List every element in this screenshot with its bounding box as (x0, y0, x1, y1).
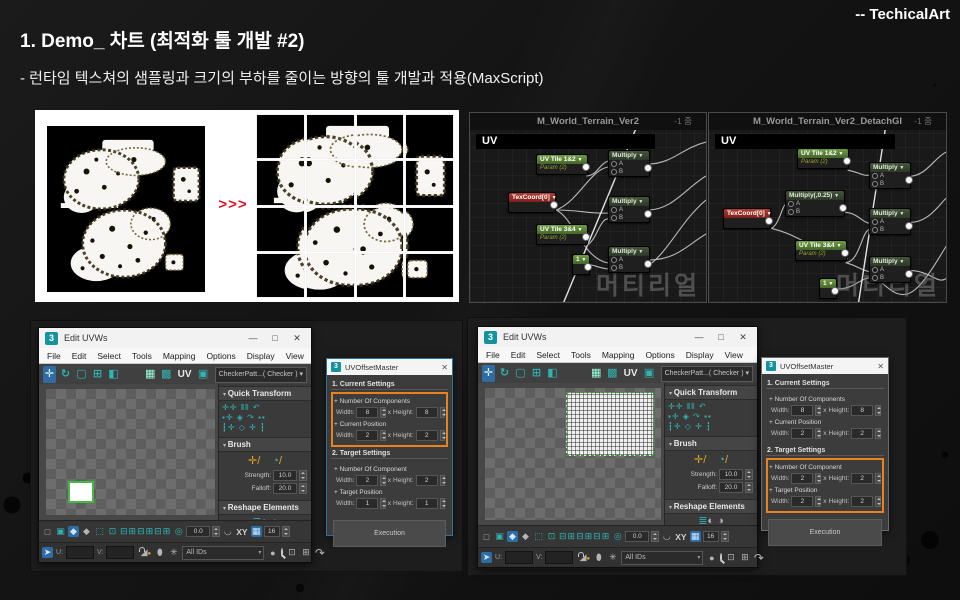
strength-value[interactable]: 10.0 (719, 469, 743, 480)
menu-item-options[interactable]: Options (206, 351, 235, 361)
width-value[interactable]: 2 (356, 430, 378, 441)
height-value[interactable]: 8 (416, 407, 438, 418)
pan-hand-icon[interactable]: ● (706, 553, 717, 563)
width-spinner[interactable] (380, 407, 385, 418)
slide-background: -- TechicalArt 1. Demo_ 차트 (최적화 툴 개발 #2)… (0, 0, 960, 600)
falloff-spinner[interactable] (745, 482, 753, 493)
input-pin[interactable] (872, 173, 878, 179)
width-value[interactable]: 1 (356, 498, 378, 509)
material-node-multiply[interactable]: Multiply ▼AB (608, 246, 650, 273)
input-row: B (870, 274, 910, 282)
minimize-button[interactable]: — (691, 332, 707, 342)
rollout-quick-transform[interactable]: Quick Transform (219, 386, 311, 401)
output-pin[interactable] (905, 176, 913, 184)
height-spinner[interactable] (440, 475, 445, 486)
curve-icon: ◡ (661, 531, 672, 542)
menu-bar: FileEditSelectToolsMappingOptionsDisplay… (39, 348, 311, 364)
zoom-icon[interactable] (281, 548, 283, 557)
zoom-region-icon[interactable]: ⊡ (286, 547, 297, 558)
menu-item-select[interactable]: Select (536, 350, 560, 360)
menu-item-display[interactable]: Display (686, 350, 714, 360)
texture-tile (307, 161, 354, 204)
zoom-level-label: -1 줌 (914, 113, 932, 130)
height-spinner[interactable] (875, 473, 881, 484)
material-node-multiply[interactable]: Multiply ▼AB (608, 196, 650, 223)
zoom-extents-icon[interactable]: ⊞ (739, 552, 750, 563)
uv-section-label: UV (715, 134, 895, 149)
texture-tile (406, 254, 453, 297)
material-node-uv-tile-3-4[interactable]: UV Tile 3&4 ▼Param (2) (795, 240, 847, 261)
chevron-down-icon: ▼ (581, 257, 586, 263)
output-pin[interactable] (765, 217, 773, 225)
height-spinner[interactable] (440, 407, 445, 418)
zoom-level-label: -1 줌 (674, 113, 692, 130)
input-pin[interactable] (611, 161, 617, 167)
scale-tool-icon[interactable]: ▢ (75, 366, 88, 383)
group-fields: Width: 2 x Height: 2 (771, 496, 881, 507)
reshape-icons[interactable]: ≣◐ ◑ (665, 514, 757, 525)
paint-brush-icon[interactable]: ✛/ (694, 455, 706, 465)
texture-tile (307, 254, 354, 297)
input-pin[interactable] (872, 275, 878, 281)
input-pin[interactable] (611, 257, 617, 263)
eye-icon[interactable]: ⬮ (154, 547, 165, 558)
transform-arrow: >>> (213, 196, 253, 213)
input-row: B (870, 226, 910, 234)
edge-mode-icon[interactable]: ▣ (494, 531, 505, 542)
node-param-value: Param (2) (537, 164, 587, 172)
output-pin[interactable] (841, 249, 849, 257)
width-spinner[interactable] (815, 496, 821, 507)
width-value[interactable]: 2 (791, 428, 813, 439)
options-icon[interactable]: ▣ (643, 365, 656, 382)
menu-item-select[interactable]: Select (97, 351, 121, 361)
strength-label: Strength: (245, 471, 271, 481)
absolute-mode-icon[interactable]: ➤ (42, 547, 53, 558)
width-value[interactable]: 2 (356, 475, 378, 486)
rotate-tool-icon[interactable]: ↻ (59, 366, 72, 383)
close-button[interactable]: ✕ (289, 333, 305, 344)
chevron-down-icon: ▼ (638, 199, 643, 205)
texture-compare-panel: >>> (35, 110, 459, 302)
group-label: + Target Position (769, 487, 881, 494)
output-pin[interactable] (582, 233, 590, 241)
texture-tile (406, 208, 453, 251)
material-node-texcoord-0-[interactable]: TexCoord[0] ▼ (508, 192, 556, 213)
pan-hand-icon[interactable]: ● (267, 548, 278, 558)
maximize-button[interactable]: □ (267, 333, 283, 343)
angle-spinner[interactable] (212, 526, 220, 537)
output-pin[interactable] (905, 222, 913, 230)
node-title: Multiply ▼ (609, 197, 649, 206)
uv-checker-grid (485, 388, 661, 520)
material-node-multiply-0-25-[interactable]: Multiply(,0.25) ▼AB (785, 190, 845, 217)
texture-tile (357, 115, 404, 158)
falloff-label: Falloff: (252, 484, 271, 494)
rollout-brush[interactable]: Brush (665, 436, 757, 451)
texture-tile (307, 115, 354, 158)
group-fields: Width: 2 x Height: 2 (336, 475, 445, 486)
height-spinner[interactable] (440, 498, 445, 509)
quick-transform-icons[interactable]: ✛✛ ⦀⦀ ↶▪✛ ◈ ↷ ▪▪┇✛ ◇ ✛ ┇ (665, 400, 757, 434)
edge-mode-icon[interactable]: ▣ (55, 526, 66, 537)
output-pin[interactable] (550, 201, 558, 209)
freeform-tool-icon[interactable]: ⊞ (91, 366, 104, 383)
chevron-down-icon: ▼ (638, 249, 643, 255)
height-label: Height: (829, 475, 850, 482)
width-value[interactable]: 2 (791, 496, 813, 507)
move-tool-icon[interactable]: ✛ (43, 366, 56, 383)
minimize-button[interactable]: — (245, 333, 261, 343)
material-ids-dropdown[interactable]: All IDs (621, 551, 703, 565)
show-map-icon[interactable]: ▦ (590, 365, 603, 382)
input-pin[interactable] (872, 219, 878, 225)
u-input[interactable] (505, 551, 533, 564)
height-value[interactable]: 2 (416, 430, 438, 441)
close-icon[interactable]: ✕ (877, 362, 884, 371)
input-pin[interactable] (872, 227, 878, 233)
rollout-quick-transform[interactable]: Quick Transform (665, 385, 757, 400)
selection-toolbar: □ ▣ ◆ ◆ ⬚ ⊡ ⊟⊞⊟⊞⊟⊞ ◎ 0.0 ◡ XY ▦ 16 (478, 525, 757, 547)
width-spinner[interactable] (380, 430, 385, 441)
width-spinner[interactable] (815, 473, 821, 484)
texture-tile (357, 161, 404, 204)
absolute-mode-icon[interactable]: ➤ (481, 552, 492, 563)
node-title: Multiply ▼ (870, 209, 910, 218)
arc-rotate-icon[interactable]: ↷ (753, 551, 764, 565)
options-icon[interactable]: ▣ (197, 366, 210, 383)
snowflake-icon[interactable]: ✳ (607, 552, 618, 563)
grid-size-value[interactable]: 16 (703, 531, 719, 542)
grid-size-value[interactable]: 16 (264, 526, 280, 537)
rotate-tool-icon[interactable]: ↻ (498, 365, 511, 382)
input-pin[interactable] (611, 265, 617, 271)
group-label: + Current Position (769, 419, 881, 426)
face-mode-icon[interactable]: ◆ (68, 526, 79, 537)
group-fields: Width: 8 x Height: 8 (336, 407, 445, 418)
group-fields: Width: 2 x Height: 2 (771, 428, 881, 439)
height-label: Height: (393, 432, 414, 439)
main-toolbar: ✛ ↻ ▢ ⊞ ◧ ▦ ▩ UV ▣ CheckerPatt...( Check… (39, 364, 311, 386)
window-body: Quick Transform ✛✛ ⦀⦀ ↶▪✛ ◈ ↷ ▪▪┇✛ ◇ ✛ ┇… (39, 384, 311, 520)
output-pin[interactable] (839, 204, 847, 212)
node-title: TexCoord[0] ▼ (724, 209, 770, 218)
grid-size-spinner[interactable] (282, 526, 290, 537)
section-heading: 2. Target Settings (766, 444, 884, 456)
show-map-icon[interactable]: ▦ (144, 366, 157, 383)
output-pin[interactable] (644, 210, 652, 218)
input-pin[interactable] (611, 215, 617, 221)
material-node-uv-tile-1-2[interactable]: UV Tile 1&2 ▼Param (2) (797, 148, 849, 169)
x-label: x (823, 407, 826, 414)
output-pin[interactable] (582, 163, 590, 171)
v-input[interactable] (106, 546, 134, 559)
menu-item-tools[interactable]: Tools (571, 350, 591, 360)
material-node-multiply[interactable]: Multiply ▼AB (869, 162, 911, 189)
input-pin[interactable] (788, 201, 794, 207)
u-label: U: (495, 554, 502, 561)
dialog-titlebar[interactable]: 3 UVOffsetMaster ✕ (327, 359, 452, 375)
node-param-value: Param (2) (796, 250, 846, 258)
relax-brush-icon[interactable]: ◔/ (718, 455, 728, 465)
height-label: Height: (393, 409, 414, 416)
input-row: A (609, 256, 649, 264)
grid-snap-icon[interactable]: ▦ (690, 531, 701, 542)
rollout-reshape-elements[interactable]: Reshape Elements (665, 499, 757, 514)
angle-snap-icon[interactable]: ◎ (612, 531, 623, 542)
menu-item-display[interactable]: Display (247, 351, 275, 361)
uv-canvas[interactable] (39, 384, 218, 520)
node-title: Multiply(,0.25) ▼ (786, 191, 844, 200)
output-pin[interactable] (584, 263, 592, 271)
execution-button[interactable]: Execution (768, 519, 882, 546)
height-spinner[interactable] (875, 496, 881, 507)
material-node-uv-tile-3-4[interactable]: UV Tile 3&4 ▼Param (2) (536, 224, 588, 245)
status-toolbar: ➤ U: V: ◢● ⬮ ✳ All IDs ● ⊡ ⊞ ↷ (39, 542, 311, 562)
scale-tool-icon[interactable]: ▢ (514, 365, 527, 382)
width-label: Width: (336, 432, 354, 439)
chevron-down-icon: ▼ (828, 281, 833, 287)
vertex-mode-icon[interactable]: □ (481, 532, 492, 542)
vertex-mode-icon[interactable]: □ (42, 527, 53, 537)
grid-snap-icon[interactable]: ▦ (251, 526, 262, 537)
material-node-multiply[interactable]: Multiply ▼AB (608, 150, 650, 177)
element-mode-icon[interactable]: ◆ (520, 531, 531, 542)
input-pin[interactable] (611, 169, 617, 175)
mirror-tool-icon[interactable]: ◧ (107, 366, 120, 383)
menu-item-options[interactable]: Options (645, 350, 674, 360)
zoom-icon[interactable] (720, 553, 722, 562)
height-spinner[interactable] (875, 428, 881, 439)
node-title: UV Tile 3&4 ▼ (796, 241, 846, 250)
material-node-uv-tile-1-2[interactable]: UV Tile 1&2 ▼Param (2) (536, 154, 588, 175)
strength-spinner[interactable] (299, 470, 307, 481)
node-graph-canvas[interactable]: UV 머티리얼 UV Tile 1&2 ▼Param (2)TexCoord[0… (470, 130, 706, 302)
height-value[interactable]: 2 (851, 496, 873, 507)
rollout-brush[interactable]: Brush (219, 437, 311, 452)
input-row: B (609, 168, 649, 176)
width-spinner[interactable] (815, 428, 821, 439)
eye-icon[interactable]: ⬮ (593, 552, 604, 563)
height-spinner[interactable] (440, 430, 445, 441)
output-pin[interactable] (644, 164, 652, 172)
close-icon[interactable]: ✕ (441, 363, 448, 372)
output-pin[interactable] (831, 287, 839, 295)
relax-brush-icon[interactable]: ◔/ (272, 456, 282, 466)
xy-axis-label[interactable]: XY (675, 532, 686, 542)
right-sidebar: Quick Transform ✛✛ ⦀⦀ ↶▪✛ ◈ ↷ ▪▪┇✛ ◇ ✛ ┇… (218, 384, 311, 520)
main-toolbar: ✛ ↻ ▢ ⊞ ◧ ▦ ▩ UV ▣ CheckerPatt...( Check… (478, 363, 757, 385)
u-input[interactable] (66, 546, 94, 559)
group-fields: Width: 1 x Height: 1 (336, 498, 445, 509)
element-mode-icon[interactable]: ◆ (81, 526, 92, 537)
height-spinner[interactable] (875, 405, 881, 416)
window-titlebar[interactable]: 3 Edit UVWs — □ ✕ (39, 328, 311, 348)
node-title: UV Tile 1&2 ▼ (537, 155, 587, 164)
height-label: Height: (393, 477, 414, 484)
freeform-tool-icon[interactable]: ⊞ (530, 365, 543, 382)
node-title: TexCoord[0] ▼ (509, 193, 555, 202)
menu-item-file[interactable]: File (47, 351, 61, 361)
mirror-tool-icon[interactable]: ◧ (546, 365, 559, 382)
width-value[interactable]: 8 (356, 407, 378, 418)
max-logo-icon: 3 (766, 361, 776, 371)
height-value[interactable]: 1 (416, 498, 438, 509)
rollout-reshape-elements[interactable]: Reshape Elements (219, 500, 311, 515)
output-pin[interactable] (644, 260, 652, 268)
material-node-texcoord-0-[interactable]: TexCoord[0] ▼ (723, 208, 771, 229)
x-label: x (388, 477, 391, 484)
align-icons[interactable]: ⊟⊞⊟⊞⊟⊞ (120, 526, 171, 537)
input-pin[interactable] (872, 181, 878, 187)
window-titlebar[interactable]: 3 Edit UVWs — □ ✕ (478, 327, 757, 347)
window-title: Edit UVWs (64, 333, 239, 343)
menu-item-edit[interactable]: Edit (72, 351, 87, 361)
chevron-down-icon: ▼ (836, 243, 841, 249)
align-icons[interactable]: ⊟⊞⊟⊞⊟⊞ (559, 531, 610, 542)
falloff-value[interactable]: 20.0 (719, 482, 743, 493)
input-pin[interactable] (788, 209, 794, 215)
falloff-label: Falloff: (698, 483, 717, 493)
quick-transform-icons[interactable]: ✛✛ ⦀⦀ ↶▪✛ ◈ ↷ ▪▪┇✛ ◇ ✛ ┇ (219, 401, 311, 435)
menu-item-edit[interactable]: Edit (511, 350, 526, 360)
u-label: U: (56, 549, 63, 556)
close-button[interactable]: ✕ (735, 332, 751, 343)
height-value[interactable]: 2 (851, 473, 873, 484)
material-node-1[interactable]: 1 ▼ (572, 254, 590, 275)
strength-label: Strength: (691, 470, 717, 480)
input-pin[interactable] (872, 267, 878, 273)
move-tool-icon[interactable]: ✛ (482, 365, 495, 382)
v-input[interactable] (545, 551, 573, 564)
section-groups-highlighted: + Number Of Components Width: 8 x Height… (331, 392, 448, 447)
snowflake-icon[interactable]: ✳ (168, 547, 179, 558)
checker-pattern-dropdown[interactable]: CheckerPatt...( Checker ) ▾ (661, 366, 753, 382)
width-value[interactable]: 2 (791, 473, 813, 484)
texture-tile (257, 161, 304, 204)
height-value[interactable]: 2 (416, 475, 438, 486)
x-label: x (823, 430, 826, 437)
angle-value[interactable]: 0.0 (186, 526, 210, 537)
height-value[interactable]: 2 (851, 428, 873, 439)
material-titlebar: M_World_Terrain_Ver2 -1 줌 (470, 113, 706, 131)
x-label: x (823, 475, 826, 482)
falloff-value[interactable]: 20.0 (273, 483, 297, 494)
dialog-titlebar[interactable]: 3 UVOffsetMaster ✕ (762, 358, 888, 374)
menu-item-mapping[interactable]: Mapping (602, 350, 635, 360)
checker-toggle-icon[interactable]: ▩ (606, 365, 619, 382)
arc-rotate-icon[interactable]: ↷ (314, 546, 325, 560)
select-region-icon[interactable]: ⬚ (94, 526, 105, 537)
face-mode-icon[interactable]: ◆ (507, 531, 518, 542)
section-groups: + Number Of Components Width: 8 x Height… (766, 391, 884, 444)
max-logo-icon: 3 (45, 332, 58, 345)
width-spinner[interactable] (380, 498, 385, 509)
select-region-icon[interactable]: ⬚ (533, 531, 544, 542)
texture-tile (307, 208, 354, 251)
angle-value[interactable]: 0.0 (625, 531, 649, 542)
width-label: Width: (771, 430, 789, 437)
paint-select-icon[interactable]: ⊡ (107, 526, 118, 537)
checker-pattern-dropdown[interactable]: CheckerPatt...( Checker ) ▾ (215, 367, 307, 383)
menu-item-view[interactable]: View (286, 351, 304, 361)
menu-item-file[interactable]: File (486, 350, 500, 360)
angle-spinner[interactable] (651, 531, 659, 542)
xy-axis-label[interactable]: XY (236, 527, 247, 537)
grid-size-spinner[interactable] (721, 531, 729, 542)
node-graph-canvas[interactable]: UV 머티리얼 UV Tile 1&2 ▼Param (2)Multiply(,… (709, 130, 946, 302)
chevron-down-icon: ▼ (577, 227, 582, 233)
zoom-extents-icon[interactable]: ⊞ (300, 547, 311, 558)
uv-selection-mesh[interactable] (566, 392, 654, 456)
page-subtitle: - 런타임 텍스쳐의 샘플링과 크기의 부하를 줄이는 방향의 툴 개발과 적용… (20, 67, 544, 88)
input-pin[interactable] (611, 207, 617, 213)
texture-tile (357, 208, 404, 251)
material-node-multiply[interactable]: Multiply ▼AB (869, 208, 911, 235)
paint-brush-icon[interactable]: ✛/ (248, 456, 260, 466)
input-row: A (870, 218, 910, 226)
x-label: x (388, 409, 391, 416)
material-editor-panel: M_World_Terrain_Ver2 -1 줌 U (469, 112, 707, 303)
menu-bar: FileEditSelectToolsMappingOptionsDisplay… (478, 347, 757, 363)
input-row: A (609, 160, 649, 168)
height-value[interactable]: 8 (851, 405, 873, 416)
material-ids-dropdown[interactable]: All IDs (182, 546, 264, 560)
checker-toggle-icon[interactable]: ▩ (160, 366, 173, 383)
angle-snap-icon[interactable]: ◎ (173, 526, 184, 537)
window-title: Edit UVWs (503, 332, 685, 342)
maximize-button[interactable]: □ (713, 332, 729, 342)
uv-space-label: UV (178, 369, 192, 380)
uv-canvas[interactable] (478, 383, 664, 525)
height-label: Height: (393, 500, 414, 507)
node-title: UV Tile 1&2 ▼ (798, 149, 848, 158)
material-title: M_World_Terrain_Ver2_DetachGI (709, 113, 946, 130)
menu-item-view[interactable]: View (725, 350, 743, 360)
material-node-1[interactable]: 1 ▼ (819, 278, 837, 299)
execution-button[interactable]: Execution (333, 520, 446, 547)
edit-uvws-window: 3 Edit UVWs — □ ✕ FileEditSelectToolsMap… (38, 327, 312, 563)
group-fields: Width: 8 x Height: 8 (771, 405, 881, 416)
paint-select-icon[interactable]: ⊡ (546, 531, 557, 542)
menu-item-mapping[interactable]: Mapping (163, 351, 196, 361)
texture-tile (257, 208, 304, 251)
node-title: Multiply ▼ (609, 151, 649, 160)
strength-spinner[interactable] (745, 469, 753, 480)
menu-item-tools[interactable]: Tools (132, 351, 152, 361)
node-title: Multiply ▼ (609, 247, 649, 256)
width-spinner[interactable] (380, 475, 385, 486)
edit-uvws-window: 3 Edit UVWs — □ ✕ FileEditSelectToolsMap… (477, 326, 758, 568)
output-pin[interactable] (843, 157, 851, 165)
group-label: + Number Of Components (334, 398, 445, 405)
falloff-spinner[interactable] (299, 483, 307, 494)
strength-value[interactable]: 10.0 (273, 470, 297, 481)
zoom-region-icon[interactable]: ⊡ (725, 552, 736, 563)
group-fields: Width: 2 x Height: 2 (336, 430, 445, 441)
width-label: Width: (771, 475, 789, 482)
output-pin[interactable] (905, 270, 913, 278)
width-spinner[interactable] (815, 405, 821, 416)
material-editor-panel: M_World_Terrain_Ver2_DetachGI -1 줌 (708, 112, 947, 303)
max-logo-icon: 3 (484, 331, 497, 344)
uv-selection-square[interactable] (68, 481, 94, 503)
width-value[interactable]: 8 (791, 405, 813, 416)
group-label: + Number Of Component (334, 466, 445, 473)
chevron-down-icon: ▼ (838, 151, 843, 157)
material-node-multiply[interactable]: Multiply ▼AB (869, 256, 911, 283)
uv-checker-grid (46, 389, 215, 515)
